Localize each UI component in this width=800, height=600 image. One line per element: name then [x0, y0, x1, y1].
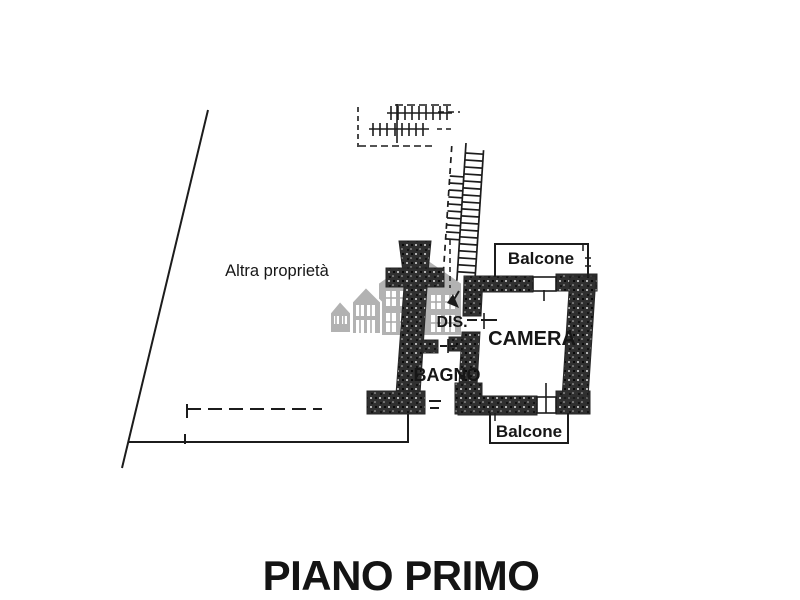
label-bedroom: CAMERA — [488, 328, 576, 350]
label-bathroom: BAGNO — [414, 365, 481, 385]
wall-partition-right-stub — [449, 337, 463, 351]
wall-left-top-stub — [399, 241, 431, 272]
wall-bedroom-bottom-left — [458, 396, 537, 415]
label-other-property: Altra proprietà — [225, 262, 329, 280]
label-balcony-bottom: Balcone — [496, 422, 562, 441]
label-hallway: DIS. — [436, 314, 467, 331]
wall-bedroom-top-left — [464, 276, 533, 292]
label-balcony-top: Balcone — [508, 249, 574, 268]
floor-plan-page: Altra proprietà DIS. CAMERA BAGNO Balcon… — [0, 0, 800, 600]
wall-tee-bar — [386, 268, 444, 287]
wall-partition-left — [422, 340, 438, 353]
page-title: PIANO PRIMO — [263, 552, 540, 599]
floor-plan-canvas: Altra proprietà DIS. CAMERA BAGNO Balcon… — [0, 0, 800, 600]
wall-bathroom-bottom — [367, 391, 425, 414]
window-balcony-top — [533, 277, 556, 291]
